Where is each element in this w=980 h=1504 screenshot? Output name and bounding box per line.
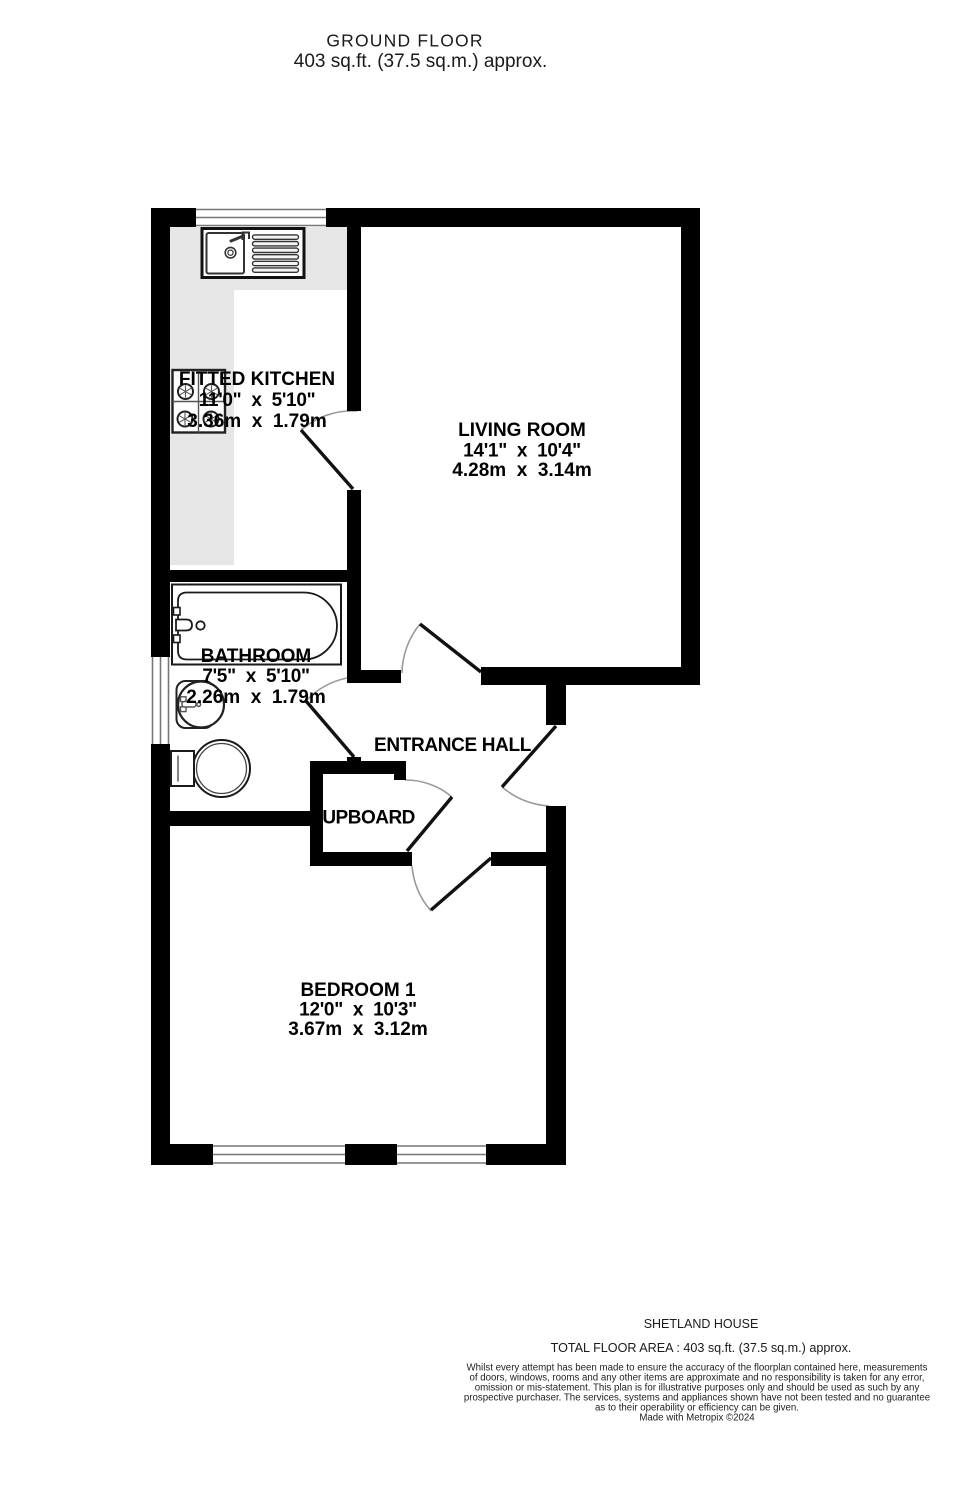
svg-text:BEDROOM 1: BEDROOM 1 (300, 980, 416, 1001)
svg-text:LIVING ROOM: LIVING ROOM (458, 420, 586, 441)
svg-text:TOTAL FLOOR AREA : 403 sq.ft.: TOTAL FLOOR AREA : 403 sq.ft. (37.5 sq.m… (551, 1341, 852, 1355)
svg-text:Made with Metropix ©2024: Made with Metropix ©2024 (639, 1413, 755, 1424)
svg-text:FITTED KITCHEN: FITTED KITCHEN (179, 369, 335, 390)
svg-text:GROUND FLOOR: GROUND FLOOR (326, 31, 483, 51)
svg-text:2.26m x 1.79m: 2.26m x 1.79m (186, 687, 325, 708)
svg-text:14'1" x 10'4": 14'1" x 10'4" (463, 441, 581, 462)
svg-text:3.36m x 1.79m: 3.36m x 1.79m (187, 411, 326, 432)
svg-text:ENTRANCE HALL: ENTRANCE HALL (374, 735, 532, 756)
svg-text:4.28m x 3.14m: 4.28m x 3.14m (452, 460, 591, 481)
svg-text:403 sq.ft. (37.5 sq.m.) approx: 403 sq.ft. (37.5 sq.m.) approx. (294, 51, 547, 72)
svg-text:CUPBOARD: CUPBOARD (309, 808, 415, 829)
svg-text:7'5" x 5'10": 7'5" x 5'10" (202, 666, 309, 687)
svg-text:3.67m x 3.12m: 3.67m x 3.12m (288, 1019, 427, 1040)
svg-text:SHETLAND HOUSE: SHETLAND HOUSE (644, 1317, 759, 1331)
svg-text:12'0" x 10'3": 12'0" x 10'3" (299, 1000, 417, 1021)
svg-text:BATHROOM: BATHROOM (201, 646, 311, 667)
svg-text:11'0" x 5'10": 11'0" x 5'10" (199, 390, 316, 411)
